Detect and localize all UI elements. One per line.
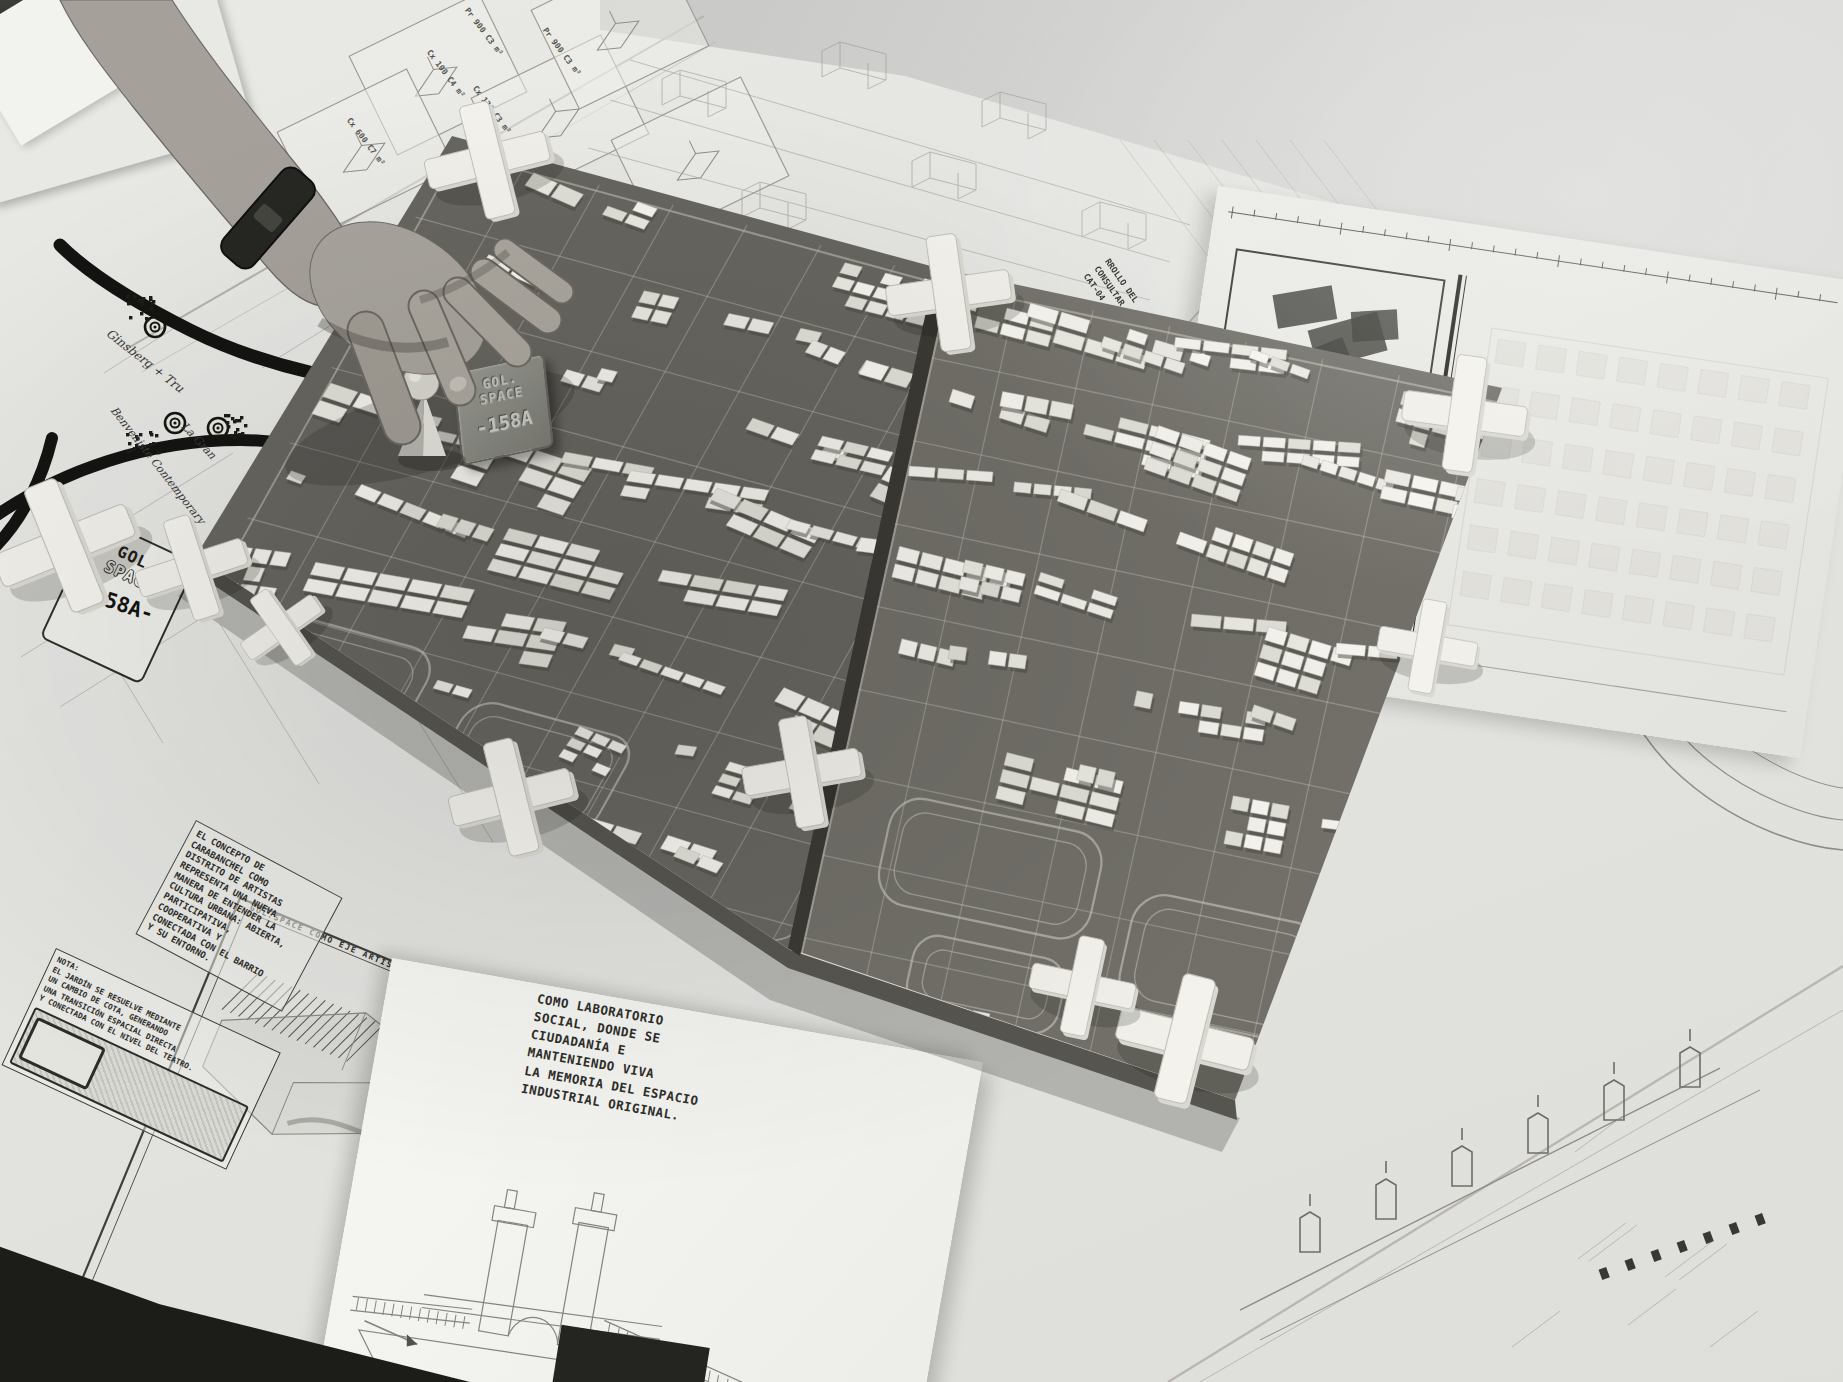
hand-layer <box>0 0 1843 1382</box>
hand <box>60 0 562 426</box>
photo-architectural-model-scene: GOL.SPACE COMO EJE ARTÍSTICO SOBRE EL QU… <box>0 0 1843 1382</box>
